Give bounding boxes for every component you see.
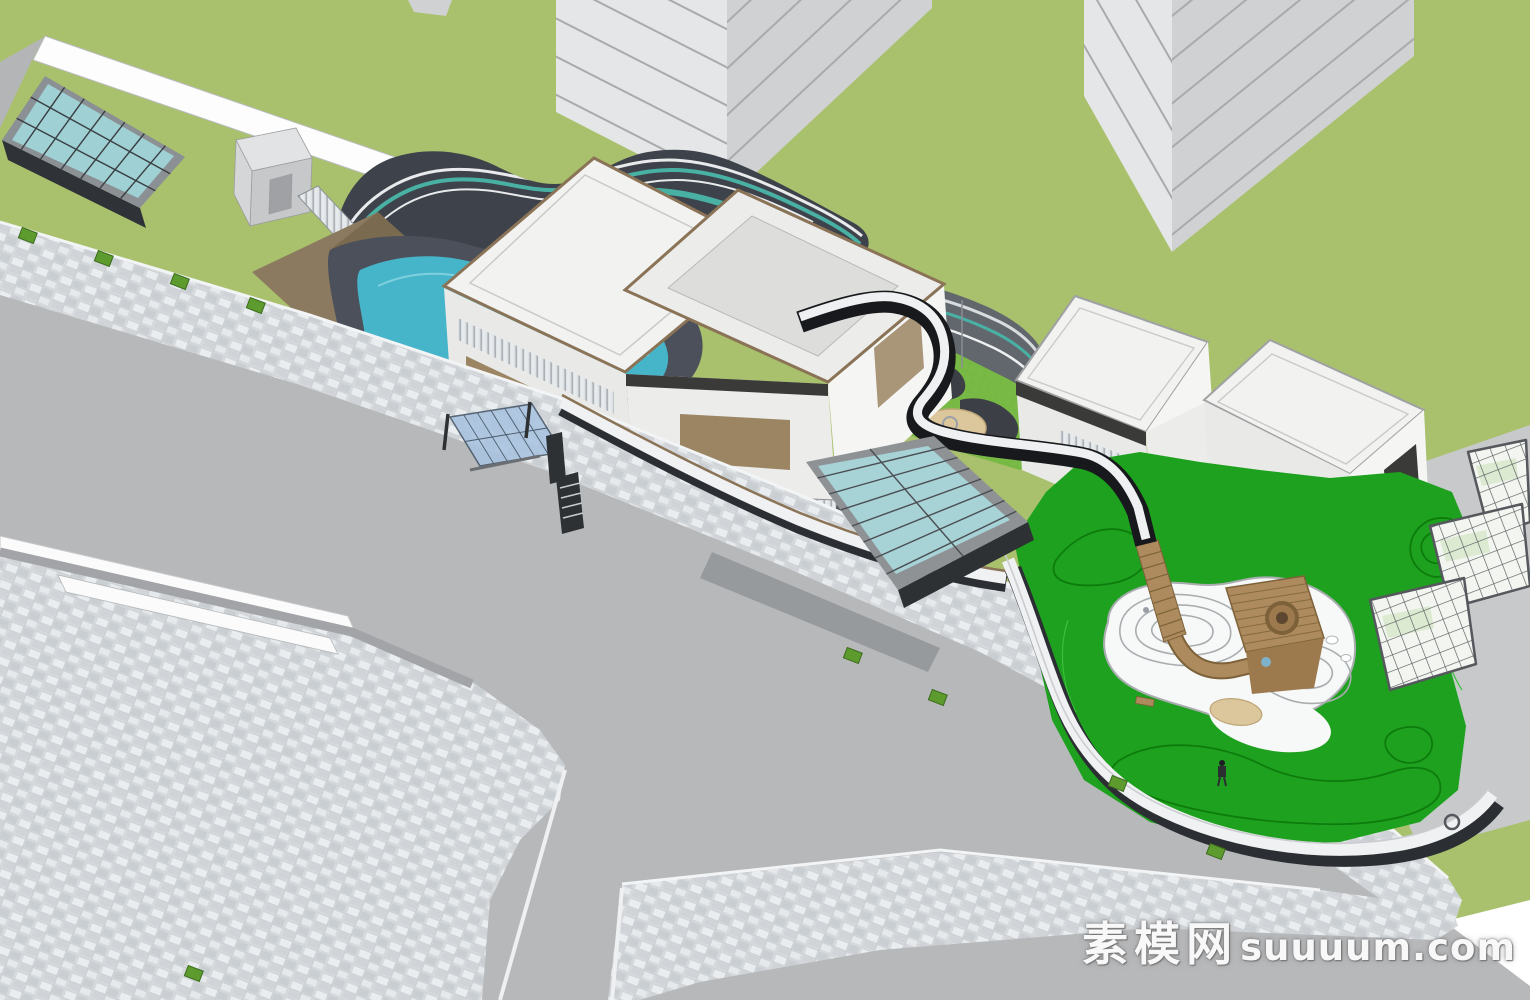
lawn-bench-2 (1341, 655, 1351, 662)
pedestrian-body (1218, 766, 1226, 777)
utility-kiosk (234, 128, 312, 226)
architectural-rendering: 素模网suuuum.com (0, 0, 1530, 1000)
watermark-latin-text: suuuum.com (1240, 926, 1516, 969)
pavilion-ring-center (1276, 612, 1288, 624)
pedestrian-head (1219, 760, 1225, 766)
watermark-cjk-text: 素模网 (1082, 908, 1238, 974)
scene-canvas (0, 0, 1530, 1000)
play-dot-2 (1143, 607, 1149, 613)
kiosk-door (269, 174, 292, 214)
lawn-bench-1 (1326, 636, 1338, 644)
pavilion-porthole (1261, 657, 1271, 667)
watermark: 素模网suuuum.com (1082, 908, 1516, 974)
